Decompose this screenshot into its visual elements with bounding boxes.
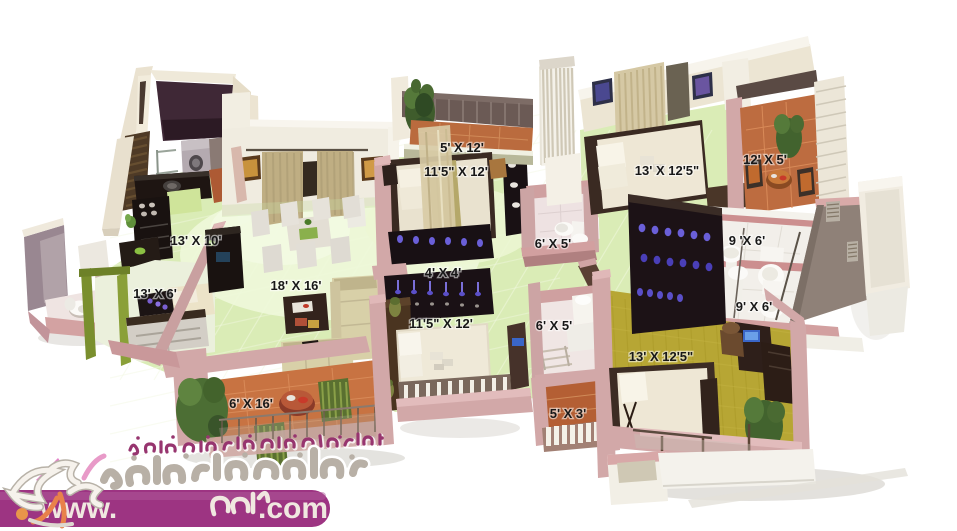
svg-text:18' X 16': 18' X 16' [271, 278, 322, 293]
svg-text:13' X 10': 13' X 10' [171, 233, 222, 248]
svg-text:13' X 12'5": 13' X 12'5" [629, 349, 693, 364]
svg-text:.com: .com [258, 492, 328, 525]
svg-text:6' X 5': 6' X 5' [536, 318, 573, 333]
svg-text:12' X 5': 12' X 5' [743, 152, 787, 167]
svg-text:5' X 3': 5' X 3' [550, 406, 587, 421]
svg-text:11'5" X 12': 11'5" X 12' [409, 316, 473, 331]
svg-text:6' X 16': 6' X 16' [229, 396, 273, 411]
svg-text:9 'X 6': 9 'X 6' [729, 233, 766, 248]
svg-text:11'5" X 12': 11'5" X 12' [424, 164, 488, 179]
svg-text:5' X 12': 5' X 12' [440, 140, 484, 155]
svg-text:13' X 12'5": 13' X 12'5" [635, 163, 699, 178]
svg-text:9' X 6': 9' X 6' [736, 299, 773, 314]
svg-text:6' X 5': 6' X 5' [535, 236, 572, 251]
svg-text:13' X 6': 13' X 6' [133, 286, 177, 301]
svg-text:4' X 4': 4' X 4' [425, 265, 462, 280]
